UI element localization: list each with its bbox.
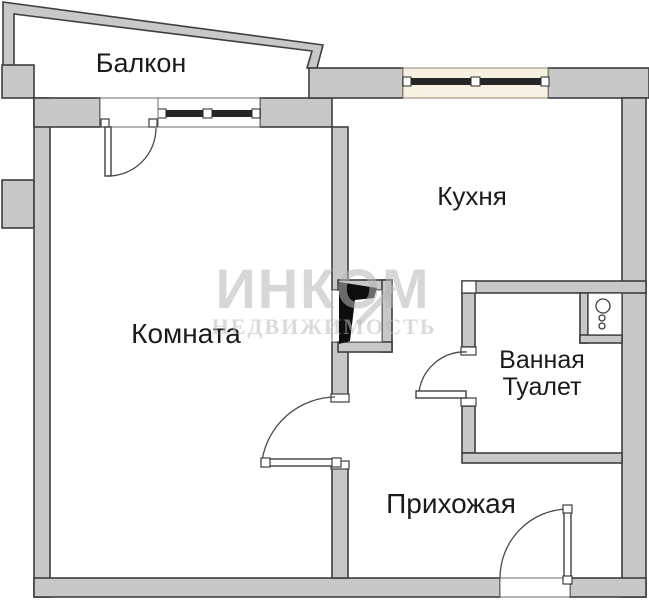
- bathroom-left-wall: [462, 406, 475, 453]
- living-room-door: [261, 394, 349, 469]
- window-bar-end: [541, 77, 549, 86]
- window-bar-center: [471, 77, 480, 86]
- bathroom-top-wall: [462, 281, 646, 293]
- wall-segment: [34, 98, 100, 127]
- label-balcony: Балкон: [96, 48, 187, 78]
- window-bar-end: [252, 109, 260, 118]
- door-hinge-cap: [332, 458, 341, 467]
- wall-segment: [622, 98, 646, 597]
- window-bar-end: [403, 77, 411, 86]
- wall-segment: [332, 463, 348, 578]
- wall-segment: [548, 68, 649, 98]
- balcony-pillar: [2, 65, 34, 98]
- door-jamb-cap: [461, 398, 476, 406]
- sink-circle-small: [599, 315, 605, 321]
- ventilation-shaft: [588, 293, 622, 335]
- door-swing-arc: [500, 509, 567, 578]
- door-swing-arc: [419, 352, 467, 392]
- door-leaf: [564, 509, 571, 580]
- left-wall-pier: [2, 180, 34, 228]
- balcony-window: [158, 98, 260, 127]
- bathroom-door: [416, 347, 476, 406]
- door-leaf: [105, 127, 111, 176]
- label-bathroom-line2: Туалет: [502, 373, 582, 401]
- sink-circle-large: [596, 299, 610, 313]
- door-leaf: [262, 459, 340, 466]
- floor-plan-svg: Балкон Кухня Комната Ванная Туалет Прихо…: [0, 0, 649, 600]
- watermark: ИНКОМ НЕДВИЖИМОСТЬ: [212, 257, 437, 339]
- label-kitchen: Кухня: [437, 181, 507, 211]
- bathroom-left-wall: [462, 293, 475, 347]
- door-hinge-cap: [563, 505, 572, 513]
- wall-segment: [34, 578, 500, 597]
- wall-segment: [570, 578, 646, 597]
- floor-plan-image: Балкон Кухня Комната Ванная Туалет Прихо…: [0, 0, 649, 600]
- shaft-wall: [580, 335, 622, 343]
- door-jamb-cap: [149, 119, 157, 127]
- door-hinge-cap: [563, 576, 572, 584]
- watermark-brand-text: ИНКОМ: [215, 257, 430, 320]
- wall-segment: [309, 68, 403, 98]
- watermark-tagline-text: НЕДВИЖИМОСТЬ: [212, 314, 437, 339]
- door-jamb-cap: [461, 347, 476, 355]
- door-frame: [338, 342, 392, 352]
- door-swing-arc: [262, 397, 335, 461]
- door-opening: [500, 578, 570, 597]
- sink-circle-small: [599, 323, 605, 329]
- wall-segment: [260, 98, 332, 127]
- window-bar-center: [203, 109, 212, 118]
- label-hallway: Прихожая: [386, 488, 516, 519]
- door-hinge-cap: [261, 458, 270, 467]
- window-bar-end: [158, 109, 166, 118]
- door-jamb-cap: [101, 119, 109, 127]
- bathroom-bottom-wall: [462, 453, 622, 463]
- wall-segment: [34, 98, 50, 597]
- door-swing-arc: [108, 128, 156, 176]
- label-bathroom-line1: Ванная: [499, 346, 585, 374]
- kitchen-window: [403, 68, 549, 98]
- balcony-door: [100, 98, 158, 176]
- door-leaf: [416, 391, 466, 398]
- wall-end-cap: [462, 281, 476, 293]
- door-jamb-cap: [331, 394, 349, 402]
